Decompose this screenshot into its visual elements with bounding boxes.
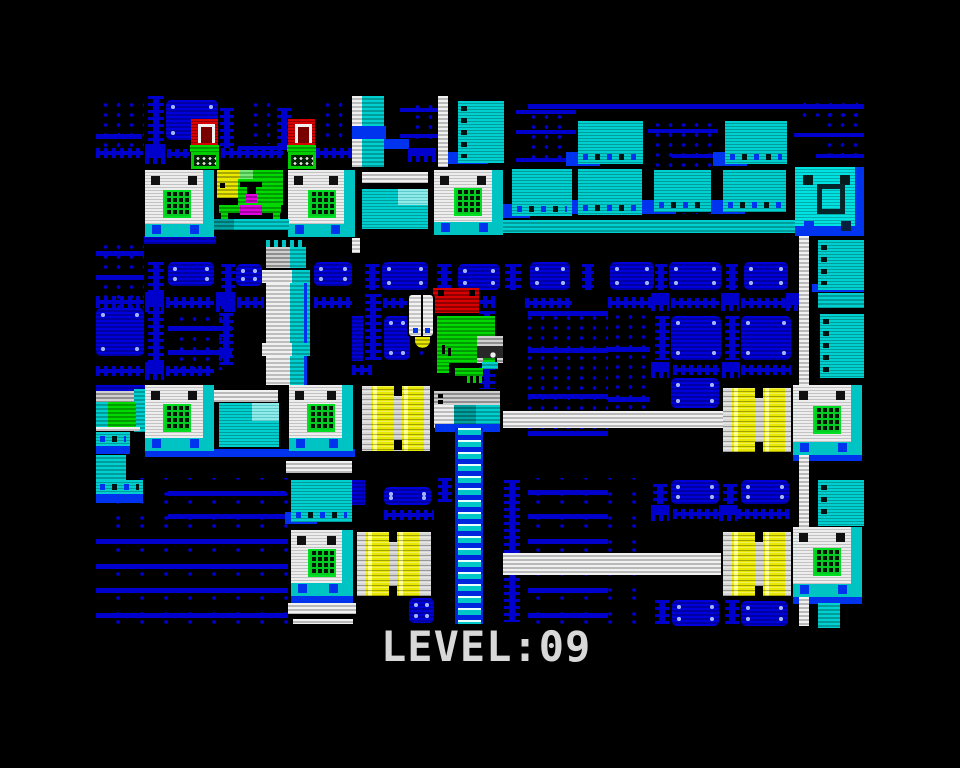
dots — [318, 98, 352, 142]
coil-pair — [357, 532, 431, 596]
fill-cyan — [292, 270, 310, 283]
wall-block — [793, 527, 862, 597]
tblock — [651, 505, 669, 521]
spring — [438, 478, 452, 502]
fill-green — [221, 213, 228, 219]
plate — [96, 308, 144, 356]
green-lattice — [163, 404, 191, 432]
wall-block — [145, 170, 214, 237]
fill-green — [253, 170, 283, 179]
fill-cyan — [818, 293, 864, 308]
dots — [96, 98, 144, 150]
fill-black — [438, 394, 443, 398]
plate — [384, 487, 431, 505]
plate — [382, 262, 428, 290]
fill-green — [108, 402, 136, 427]
hline — [608, 397, 650, 402]
chain — [166, 366, 214, 376]
hline — [528, 394, 608, 399]
wall-block — [793, 385, 862, 455]
tblock — [722, 362, 740, 378]
hline — [528, 588, 608, 593]
chain — [671, 298, 719, 308]
fill-magenta — [240, 205, 262, 215]
fill-cyan — [307, 283, 310, 343]
spring — [365, 264, 379, 290]
level-indicator: LEVEL:09 — [381, 624, 581, 670]
cyan-dotbar — [96, 480, 143, 494]
fill-white — [266, 356, 290, 385]
tblock — [408, 148, 436, 162]
creature-face — [217, 170, 283, 219]
tblock — [721, 293, 739, 311]
fill-black — [448, 348, 451, 356]
dot-grid — [516, 478, 650, 626]
hline — [96, 134, 142, 139]
chain — [96, 296, 144, 308]
player-beak — [415, 337, 430, 348]
chain — [314, 297, 352, 308]
chain — [166, 297, 214, 308]
chain — [237, 297, 264, 308]
robot-eyes — [477, 346, 503, 358]
plate — [671, 480, 719, 504]
dots — [246, 98, 274, 144]
hline — [96, 564, 288, 569]
player-foot — [437, 363, 449, 373]
fill-gray — [434, 391, 500, 405]
white-pillar — [799, 597, 809, 626]
pillar-cap — [287, 145, 316, 152]
red-crest — [433, 288, 479, 313]
fill-dkblue — [144, 236, 216, 244]
cyan-tall — [458, 101, 504, 163]
hline — [96, 251, 144, 256]
face-tongue — [246, 194, 257, 203]
plate — [672, 600, 719, 626]
tblock — [651, 293, 669, 311]
spring — [365, 294, 381, 360]
chain — [608, 297, 651, 308]
spring — [220, 108, 234, 148]
hline — [648, 129, 718, 133]
plate — [236, 264, 262, 286]
fill-cyan — [818, 603, 840, 628]
chain — [673, 509, 719, 519]
fill-cyan — [482, 362, 498, 369]
hline — [516, 130, 576, 134]
cyan-box — [362, 189, 428, 229]
wall-block — [145, 385, 214, 451]
tblock — [145, 362, 164, 380]
hline — [528, 311, 608, 316]
chain — [673, 365, 719, 375]
white-beam — [503, 553, 721, 575]
spring — [582, 264, 594, 290]
fill-blue — [304, 356, 307, 385]
chain — [737, 509, 789, 519]
fill-black — [247, 187, 256, 194]
cyan-tall — [820, 314, 864, 378]
fill-blue — [96, 494, 143, 503]
pillar-cap — [190, 145, 219, 152]
chain — [384, 510, 434, 520]
fill-cyan — [290, 356, 304, 385]
chain — [741, 365, 791, 375]
spring — [437, 264, 451, 290]
pillar-grille — [288, 152, 316, 169]
wall-block — [289, 385, 353, 451]
plate — [530, 262, 570, 290]
tblock — [145, 144, 165, 164]
hline — [528, 613, 608, 618]
fill-green — [273, 213, 280, 219]
player-tail-teeth — [467, 376, 483, 383]
tblock — [719, 505, 737, 521]
cyan-plate — [578, 169, 642, 215]
plate — [671, 316, 721, 360]
plate — [669, 262, 721, 290]
hline — [528, 539, 608, 544]
fill-cyan — [290, 247, 306, 268]
hline — [96, 539, 288, 544]
white-pillar — [438, 96, 448, 167]
plate — [168, 262, 214, 286]
hline — [608, 347, 650, 352]
player-tail — [455, 368, 483, 376]
fill-white — [352, 238, 360, 253]
game-screen[interactable]: LEVEL:09 — [0, 0, 960, 768]
spring — [655, 316, 669, 360]
spring — [505, 264, 521, 290]
wall-block — [434, 170, 503, 235]
robot-face — [477, 336, 503, 363]
coil-pair — [362, 386, 430, 451]
coil-pair — [723, 388, 791, 452]
green-lattice — [163, 190, 191, 218]
green-lattice — [308, 549, 336, 577]
cyan-dotbar — [96, 432, 130, 446]
chain — [316, 148, 354, 158]
fill-dkblue — [352, 480, 365, 505]
player-sprite — [405, 288, 503, 383]
cyan-plate — [578, 121, 643, 164]
fill-white — [262, 270, 292, 283]
fill-cyan — [290, 283, 304, 343]
cyan-tall — [818, 480, 864, 526]
fill-white — [352, 96, 362, 126]
coil-pair — [723, 532, 791, 596]
ladder — [455, 428, 483, 624]
spring — [653, 484, 667, 504]
chain — [525, 298, 572, 308]
fill-dkblue — [352, 316, 363, 361]
hline — [528, 514, 608, 519]
hline — [516, 110, 576, 114]
tblock — [216, 292, 235, 312]
plate — [409, 598, 434, 623]
fill-cyan — [362, 96, 384, 126]
fill-yellow — [217, 179, 238, 198]
cyan-plate — [291, 480, 352, 522]
chain — [352, 365, 372, 375]
fill-blue — [96, 446, 130, 454]
spring — [726, 264, 738, 290]
spring — [725, 600, 739, 624]
fill-cyan — [234, 219, 289, 230]
plate — [610, 262, 654, 290]
chain — [96, 148, 143, 158]
white-pillar — [799, 236, 809, 387]
fill-cyan — [96, 402, 108, 427]
white-pillar — [799, 455, 809, 528]
fill-gray — [96, 391, 134, 402]
hline — [96, 588, 288, 593]
chain — [741, 298, 791, 308]
face-eye — [220, 183, 225, 188]
white-beam — [293, 619, 353, 624]
pillar-grille — [191, 152, 219, 169]
checker — [266, 240, 306, 247]
cyan-plate — [512, 169, 572, 216]
cyan-plate — [725, 121, 787, 164]
green-lattice — [454, 188, 482, 216]
cyan-tall — [818, 240, 864, 290]
spring — [219, 313, 233, 365]
exit-motif — [817, 184, 845, 214]
plate — [741, 316, 791, 360]
plate — [671, 378, 719, 408]
spring — [504, 480, 520, 622]
fill-blue — [384, 139, 409, 149]
hline — [528, 431, 608, 436]
fill-gray — [266, 247, 290, 268]
hline — [672, 154, 716, 158]
plate — [744, 262, 788, 290]
exit-block — [795, 167, 864, 236]
cyan-plate — [723, 170, 786, 212]
hline — [96, 275, 144, 280]
chain — [221, 148, 283, 158]
fill-cyan — [96, 455, 126, 480]
white-beam — [362, 172, 428, 183]
fill-blue — [352, 126, 386, 139]
red-arch — [191, 119, 218, 146]
plate — [458, 264, 500, 290]
fill-white — [96, 427, 140, 431]
player-head — [407, 293, 435, 338]
fill-cyan — [362, 139, 384, 167]
green-lattice — [308, 190, 336, 218]
dots — [820, 108, 864, 158]
fill-black — [442, 345, 445, 354]
fill-cyan — [292, 343, 310, 356]
spring — [148, 262, 164, 366]
green-lattice — [307, 404, 335, 432]
red-arch — [288, 119, 315, 146]
wall-block — [291, 530, 353, 596]
tblock — [786, 293, 800, 311]
hline — [168, 514, 286, 519]
spring — [725, 316, 739, 360]
cyan-plate — [654, 170, 711, 212]
fill-gray — [477, 336, 503, 346]
hline — [528, 490, 608, 495]
spring — [655, 264, 667, 290]
fill-white — [266, 283, 290, 343]
cyan-box — [219, 403, 279, 447]
plate — [741, 601, 788, 626]
fill-yellow — [217, 170, 240, 179]
white-beam — [214, 390, 278, 402]
hline — [400, 134, 440, 138]
hline — [528, 348, 608, 353]
hline — [96, 613, 288, 618]
fill-ltgreen — [240, 170, 253, 179]
fill-white — [262, 343, 292, 356]
chain — [167, 149, 190, 158]
wall-block — [288, 170, 355, 237]
spring — [723, 484, 737, 504]
hline — [168, 491, 286, 496]
white-beam — [288, 603, 356, 614]
fill-black — [438, 400, 443, 404]
plate — [314, 262, 352, 286]
tblock — [145, 292, 164, 312]
hline — [400, 108, 440, 112]
white-beam — [286, 461, 352, 473]
cyan-beam — [503, 220, 795, 233]
white-beam — [503, 411, 723, 428]
plate — [741, 480, 789, 504]
fill-white — [352, 139, 362, 167]
green-lattice — [813, 548, 841, 576]
green-lattice — [813, 406, 841, 434]
tblock — [651, 362, 669, 378]
fill-teal — [214, 219, 234, 230]
chain — [96, 366, 144, 376]
spring — [655, 600, 669, 624]
dots — [608, 310, 650, 422]
